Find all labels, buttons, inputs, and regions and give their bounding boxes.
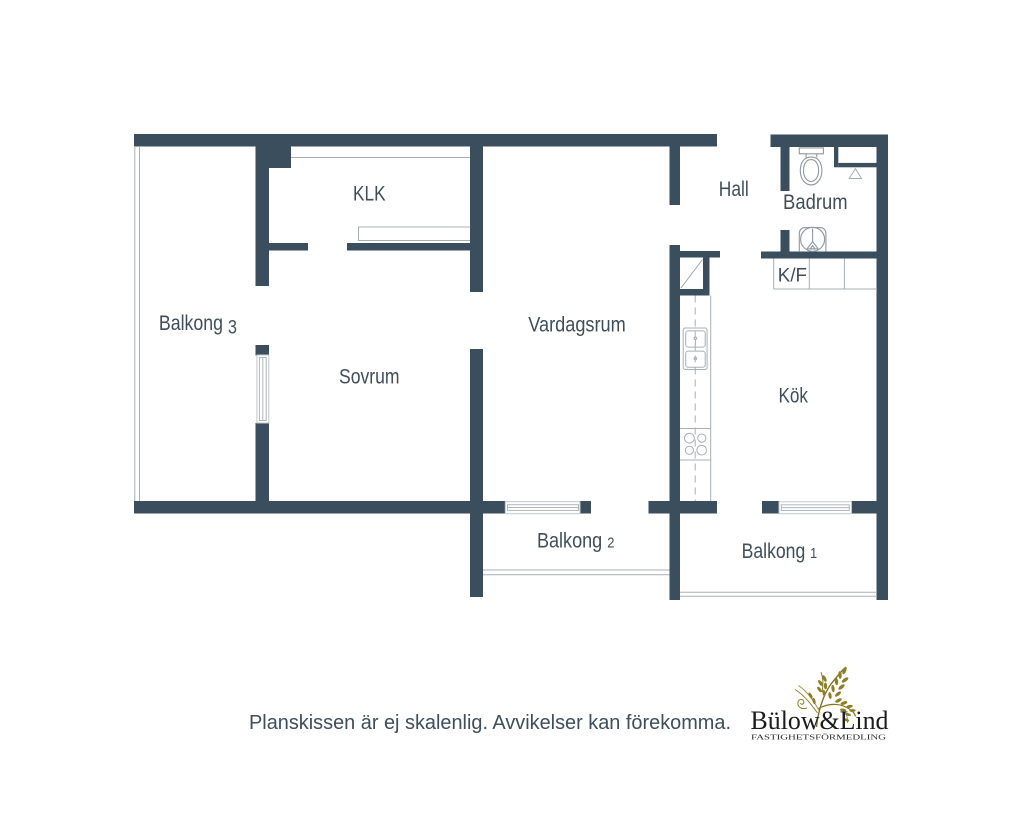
svg-text:FASTIGHETSFÖRMEDLING: FASTIGHETSFÖRMEDLING (751, 732, 887, 741)
svg-text:Vardagsrum: Vardagsrum (528, 313, 626, 336)
svg-text:Badrum: Badrum (783, 191, 848, 214)
svg-text:Sovrum: Sovrum (339, 365, 400, 388)
svg-text:Planskissen är ej skalenlig. A: Planskissen är ej skalenlig. Avvikelser … (249, 712, 731, 734)
svg-text:Hall: Hall (719, 178, 749, 201)
svg-text:Kök: Kök (778, 384, 808, 407)
svg-text:Balkong 3: Balkong 3 (159, 312, 237, 339)
svg-text:Balkong 1: Balkong 1 (742, 540, 818, 563)
svg-text:Balkong 2: Balkong 2 (537, 529, 615, 552)
svg-text:K/F: K/F (778, 266, 807, 287)
svg-text:Bülow&Lind: Bülow&Lind (751, 705, 889, 735)
svg-text:KLK: KLK (353, 182, 386, 205)
